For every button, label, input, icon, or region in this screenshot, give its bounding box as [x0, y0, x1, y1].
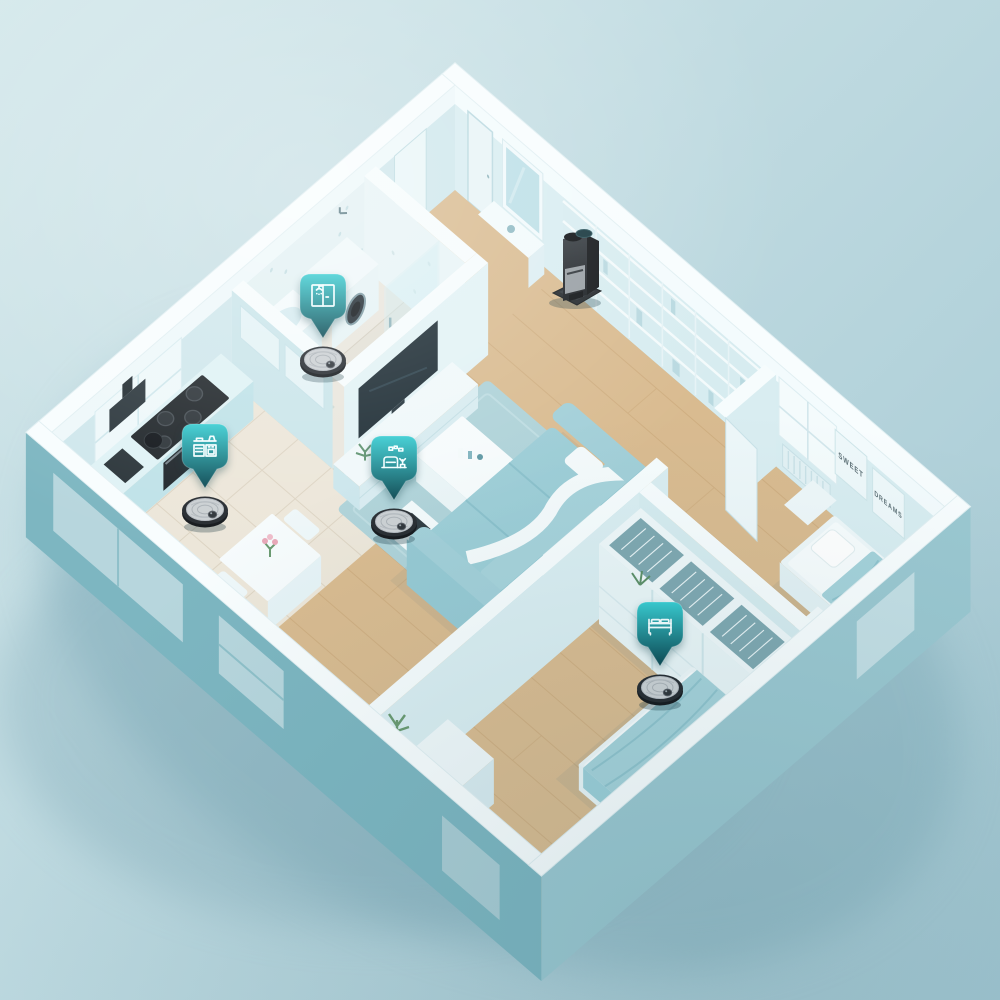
robot-vacuum-living-room — [368, 503, 420, 545]
robot-camera — [397, 523, 405, 530]
robot-vacuum-bathroom — [297, 341, 349, 383]
charging-dock — [543, 217, 607, 309]
robot-camera — [208, 511, 216, 518]
smart-map-illustration: SWEET DREAMS — [0, 0, 1000, 1000]
map-pin-bathroom[interactable] — [295, 270, 351, 342]
robot-camera — [663, 689, 671, 696]
dock-lid-display — [576, 230, 592, 238]
robot-camera — [326, 361, 334, 368]
sprite-layer — [0, 0, 1000, 1000]
map-pin-living-room[interactable] — [366, 432, 422, 504]
map-pin-kitchen[interactable] — [177, 420, 233, 492]
map-pin-bedroom[interactable] — [632, 598, 688, 670]
robot-vacuum-kitchen — [179, 491, 231, 533]
robot-vacuum-bedroom — [634, 669, 686, 711]
